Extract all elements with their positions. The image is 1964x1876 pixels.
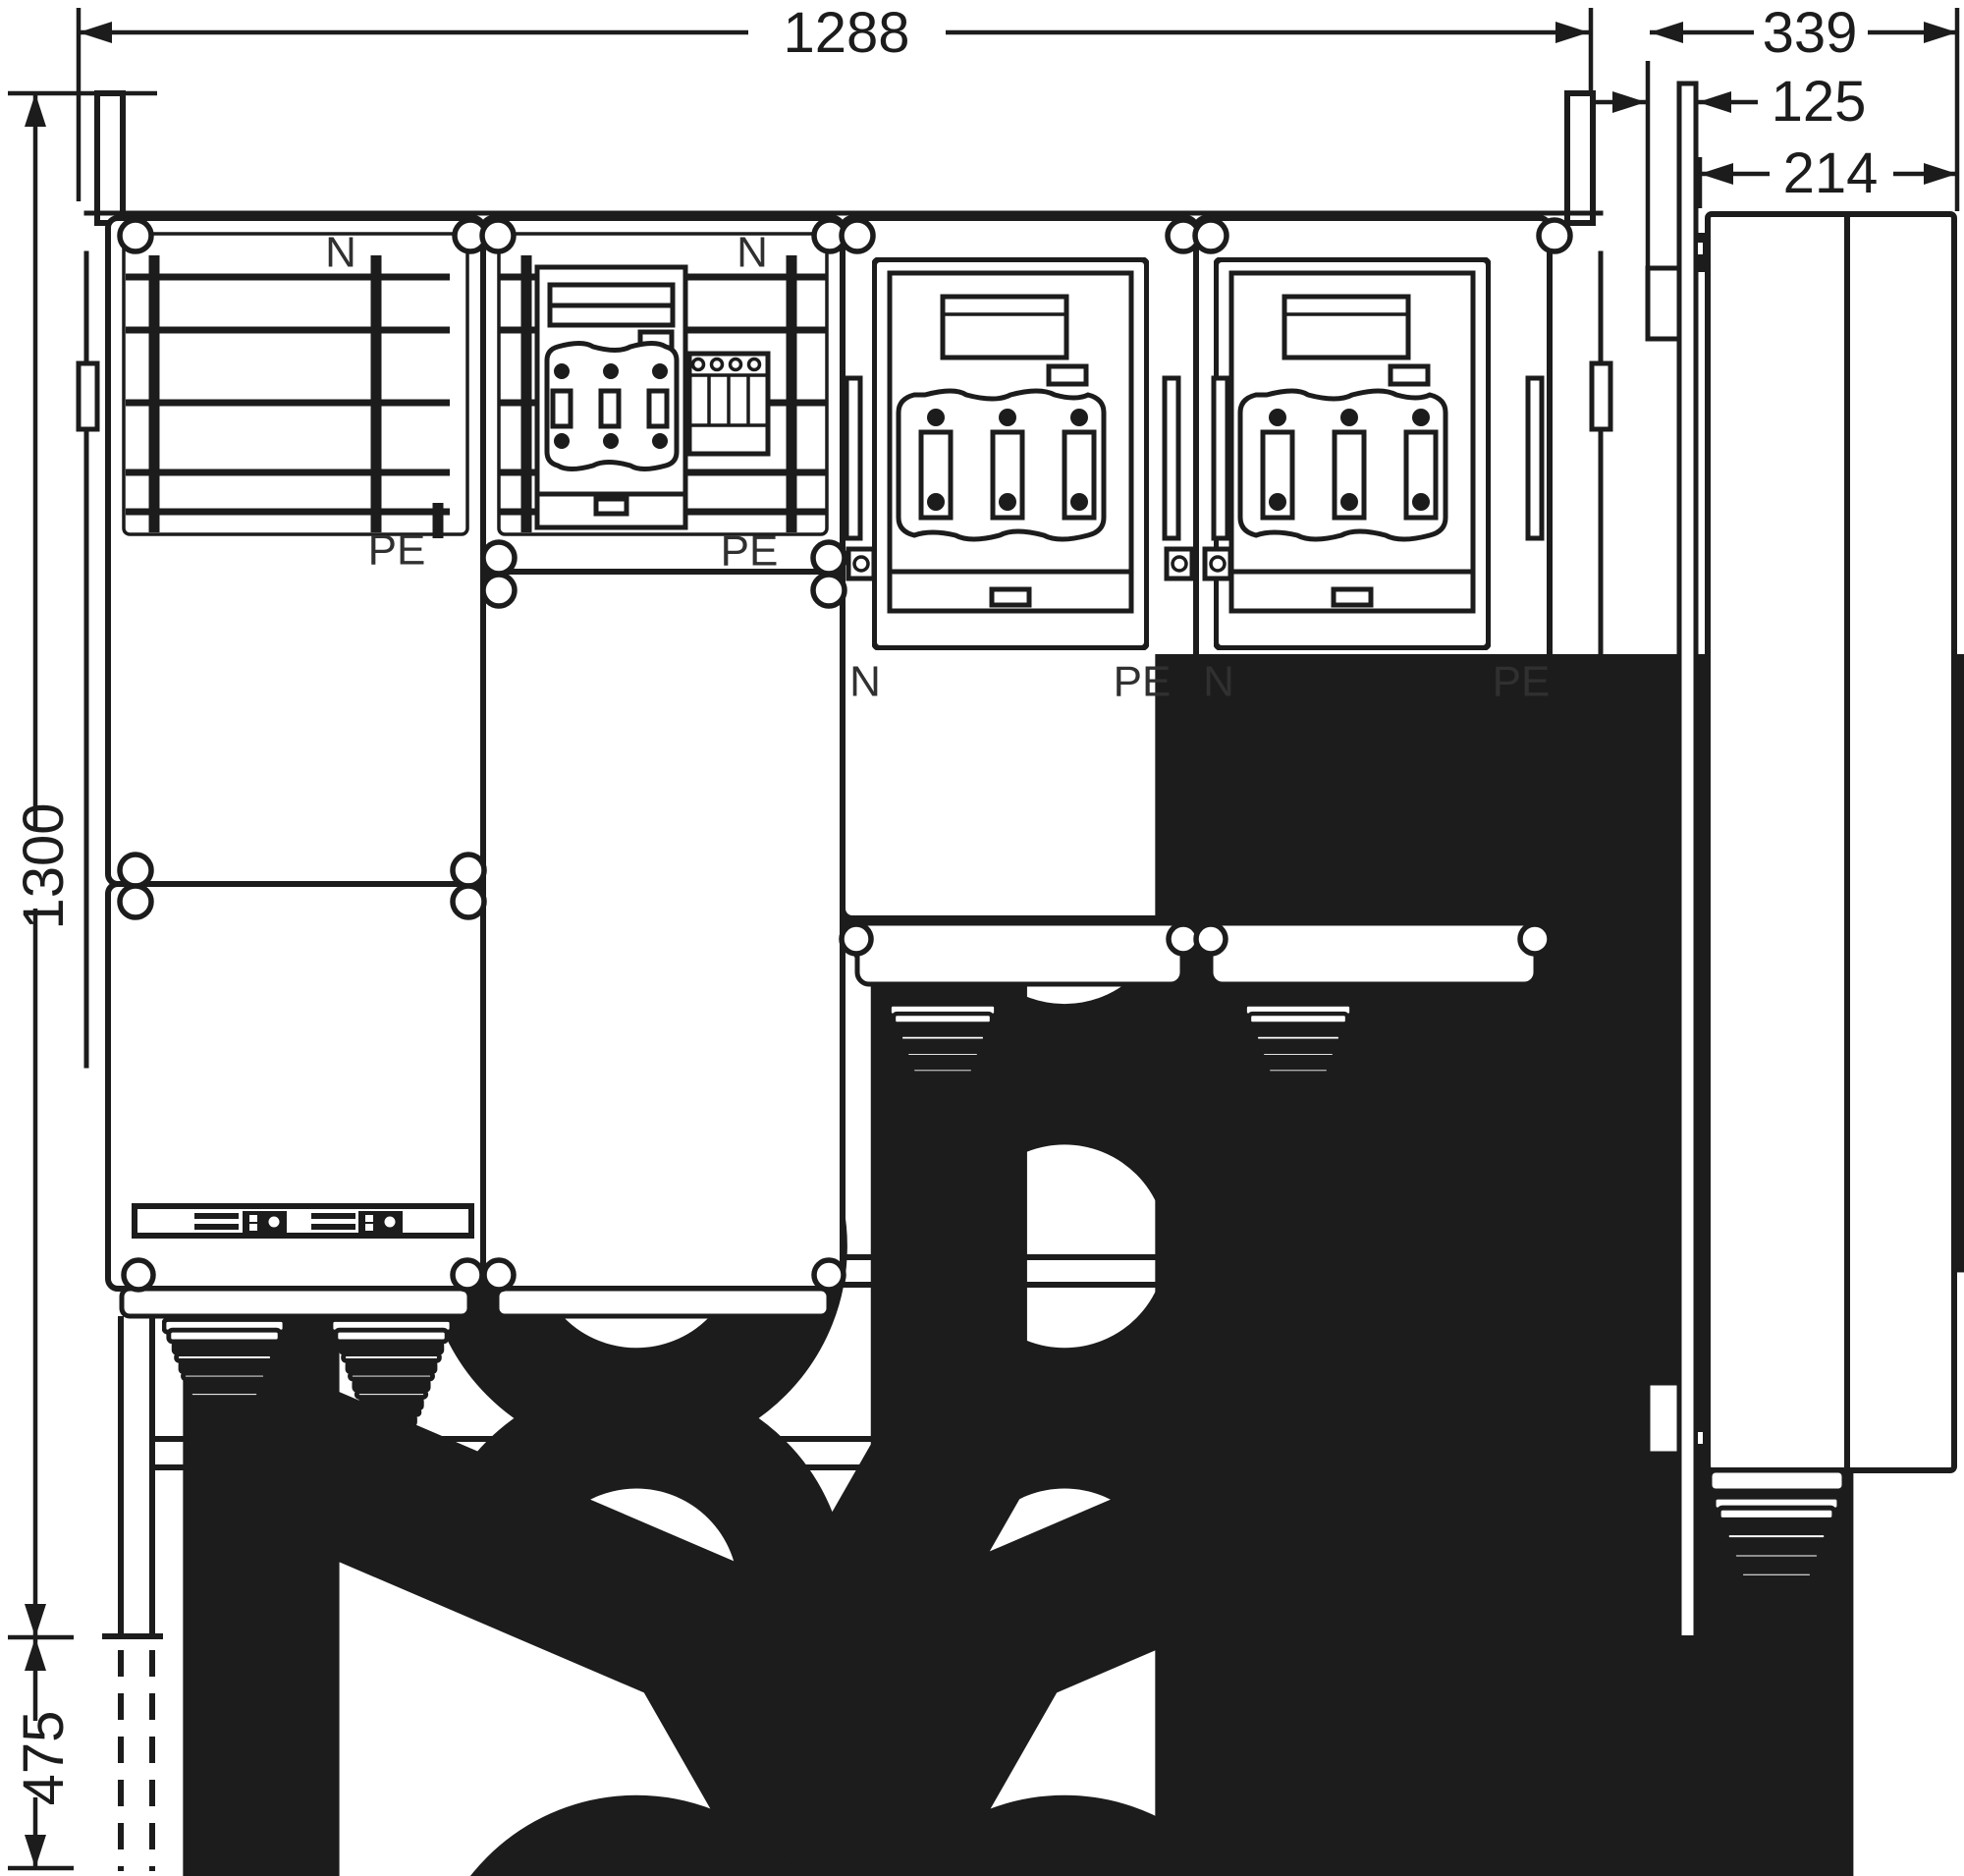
dim-height-label: 1300 [12, 802, 76, 929]
wall-bracket-lug [79, 363, 97, 429]
cabinet-dimension-drawing: 1288 1300 475 339 125 [0, 0, 1964, 1876]
wall-bracket-bottom [1648, 1383, 1679, 1454]
stand-post-right [1567, 93, 1593, 223]
dim-depth-body-label: 214 [1783, 141, 1879, 205]
gland-plate-left [122, 1289, 469, 1316]
side-gland-plate [1710, 1470, 1844, 1491]
switch-disconnector [537, 267, 685, 527]
wall-bracket-top [1648, 268, 1679, 339]
fuse1-neutral-label: N [849, 658, 881, 706]
stand-post-side [1679, 83, 1696, 1638]
fuse2-earth-label: PE [1493, 658, 1551, 706]
dimension-front-width: 1288 [79, 1, 1591, 201]
stand-post-left [97, 93, 123, 223]
stand-label: Standfuß [179, 1673, 231, 1864]
din-terminal-block [689, 354, 768, 454]
door-lock [1167, 549, 1192, 579]
gland-plate-fuse2 [1211, 923, 1536, 984]
busbar1-earth-label: PE [368, 526, 426, 575]
dim-width-label: 1288 [783, 1, 909, 65]
dim-depth-total-label: 339 [1763, 1, 1858, 65]
gland-plate-fuse1 [857, 923, 1182, 984]
cabinet-side-body [1708, 214, 1954, 1470]
door-lock [1205, 549, 1230, 579]
busbar-box-1 [108, 218, 483, 884]
door-lock [848, 549, 874, 579]
wall-bracket-lug [1592, 363, 1610, 429]
dim-stand-label: 475 [12, 1711, 76, 1806]
fuse2-neutral-label: N [1203, 658, 1234, 706]
fuse1-earth-label: PE [1114, 658, 1172, 706]
dim-depth-rear-label: 125 [1772, 70, 1867, 134]
terminal-strip [135, 1206, 471, 1236]
empty-box-middle [483, 572, 843, 1289]
dimension-depth-rear: 125 [1583, 70, 1866, 134]
busbar2-earth-label: PE [721, 527, 779, 576]
dimension-depth-body: 214 [1700, 141, 1957, 208]
busbar2-neutral-label: N [736, 229, 768, 277]
switch-handle [596, 499, 627, 514]
gland-plate-middle [497, 1289, 829, 1316]
dimension-stand-height: 475 [8, 1637, 76, 1868]
technical-drawing-page: 1288 1300 475 339 125 [0, 0, 1964, 1876]
busbar1-neutral-label: N [325, 229, 356, 277]
stand-foot-left [102, 1316, 163, 1871]
